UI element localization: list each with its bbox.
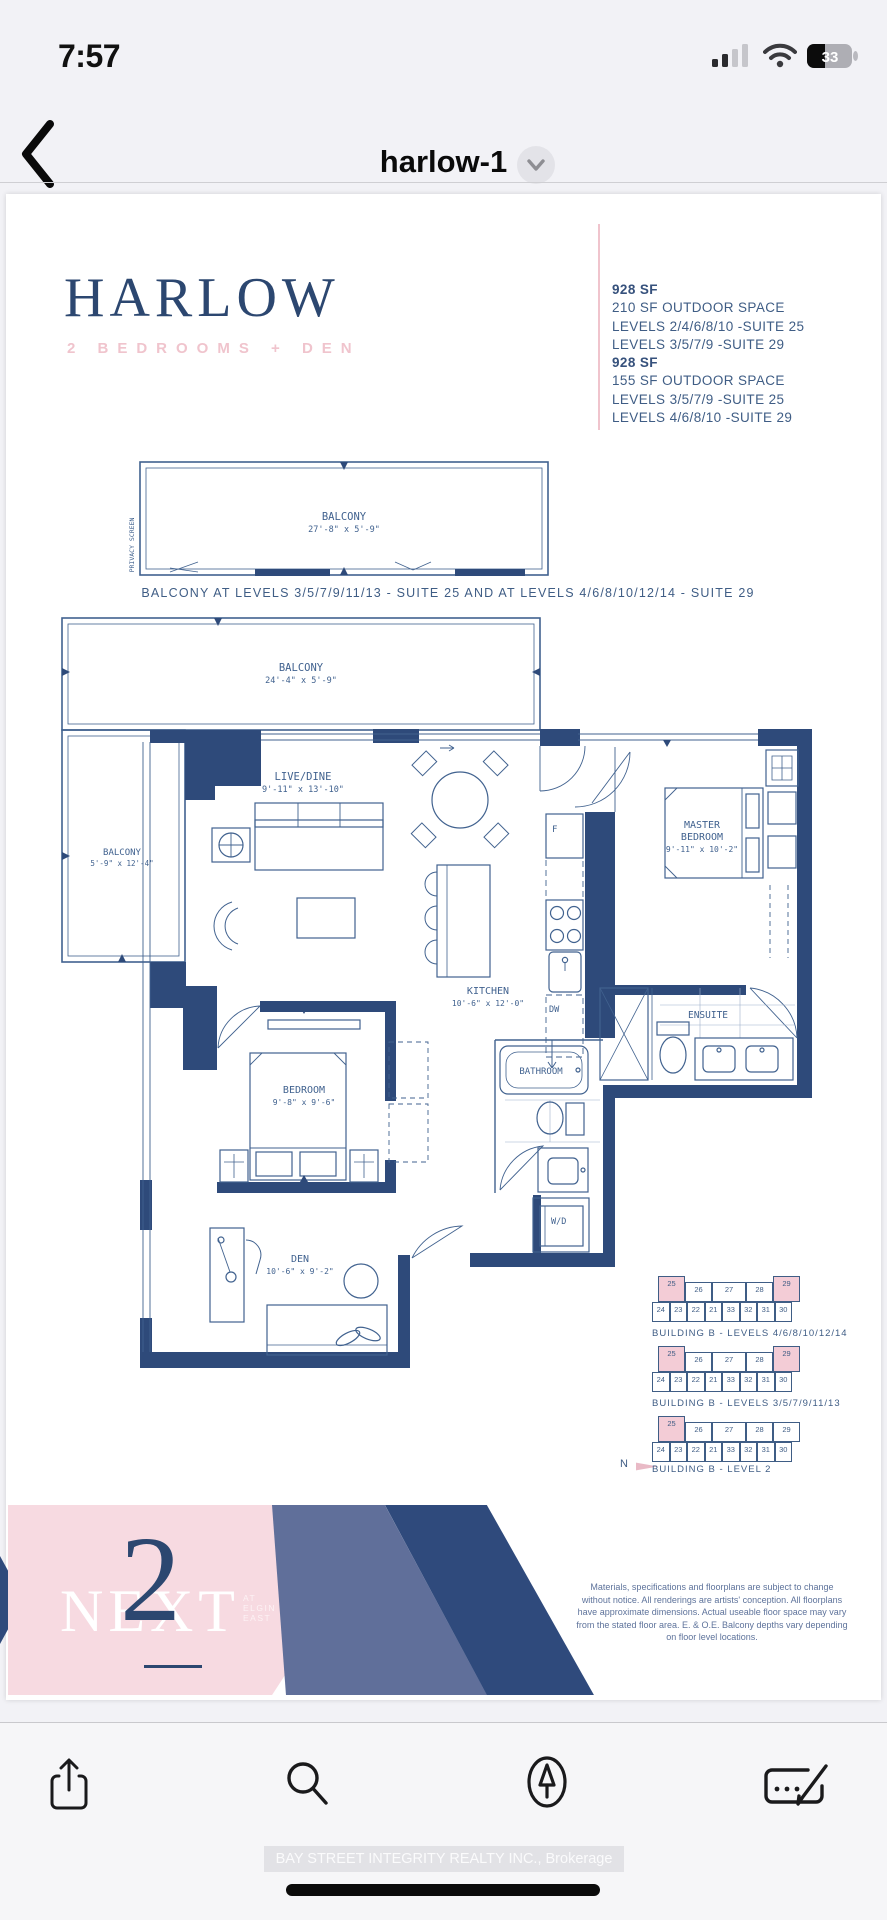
live-dine-label: LIVE/DINE	[275, 771, 332, 783]
keyplan-suite: 30	[775, 1372, 793, 1392]
keyplan-suite: 22	[687, 1442, 705, 1462]
balcony-strip-dims: 27'-8" x 5'-9"	[308, 525, 380, 535]
balcony-caption: BALCONY AT LEVELS 3/5/7/9/11/13 - SUITE …	[141, 586, 754, 600]
tagline-line: AT	[243, 1593, 276, 1603]
bathroom-label: BATHROOM	[519, 1067, 563, 1077]
master-bedroom-dims: 9'-11" x 10'-2"	[666, 845, 738, 854]
keyplan-suite: 28	[746, 1352, 773, 1372]
keyplan-suite: 30	[775, 1442, 793, 1462]
spec-line: LEVELS 3/5/7/9 -SUITE 29	[612, 336, 804, 354]
spec-divider-line	[598, 224, 600, 430]
privacy-screen-label: PRIVACY SCREEN	[128, 518, 136, 573]
keyplan-suite: 27	[712, 1352, 746, 1372]
keyplan-suite: 21	[705, 1442, 723, 1462]
north-label: N	[620, 1458, 628, 1470]
keyplan-levels-4-14: 25 26 27 28 29 24 23 22 21 33 32 31 30	[652, 1282, 812, 1322]
den-label: DEN	[291, 1254, 309, 1265]
keyplan-suite: 22	[687, 1372, 705, 1392]
master-bedroom-label-1: MASTER	[684, 820, 721, 831]
keyplan-suite: 31	[757, 1372, 775, 1392]
keyplan-caption: BUILDING B - LEVEL 2	[652, 1464, 872, 1475]
spec-line: 928 SF	[612, 281, 804, 299]
spec-line: LEVELS 4/6/8/10 -SUITE 29	[612, 409, 804, 427]
keyplan-suite: 23	[670, 1302, 688, 1322]
keyplan-level-2: 25 26 27 28 29 24 23 22 21 33 32 31 30	[652, 1422, 812, 1462]
brand-underline	[144, 1665, 202, 1668]
chevron-down-icon	[527, 159, 545, 171]
status-icons: 33	[711, 42, 859, 70]
keyplan-suite: 24	[652, 1372, 670, 1392]
brokerage-watermark: BAY STREET INTEGRITY REALTY INC., Broker…	[264, 1846, 624, 1872]
keyplan-suite: 26	[685, 1352, 712, 1372]
keyplan-caption: BUILDING B - LEVELS 4/6/8/10/12/14	[652, 1328, 872, 1339]
keyplan-suite: 33	[722, 1442, 740, 1462]
brand-numeral: 2	[120, 1519, 181, 1641]
kitchen-label: KITCHEN	[467, 986, 509, 997]
keyplan-suite: 22	[687, 1302, 705, 1322]
ensuite-label: ENSUITE	[688, 1010, 728, 1021]
fridge-label: F	[552, 825, 557, 835]
keyplan-suite: 30	[775, 1302, 793, 1322]
keyplan-suite: 24	[652, 1442, 670, 1462]
brand-banner: NEXT 2 AT ELGIN EAST Materials, specific…	[0, 1505, 887, 1695]
keyplan-suite: 32	[740, 1372, 758, 1392]
live-dine-dims: 9'-11" x 13'-10"	[262, 785, 344, 795]
keyplan-suite: 32	[740, 1442, 758, 1462]
keyplan-suite: 21	[705, 1372, 723, 1392]
keyplan-caption: BUILDING B - LEVELS 3/5/7/9/11/13	[652, 1398, 872, 1409]
keyplan-suite: 23	[670, 1372, 688, 1392]
balcony-side-dims: 5'-9" x 12'-4"	[90, 859, 153, 868]
spec-block: 928 SF 210 SF OUTDOOR SPACE LEVELS 2/4/6…	[612, 281, 804, 427]
keyplan-suite: 29	[773, 1276, 800, 1302]
spec-line: 928 SF	[612, 354, 804, 372]
toolbar-divider	[0, 1722, 887, 1723]
keyplan-suite: 31	[757, 1302, 775, 1322]
document-title: harlow-1	[0, 144, 887, 180]
plan-name: HARLOW	[64, 266, 340, 330]
keyplan-suite: 28	[746, 1422, 773, 1442]
keyplan-suite: 26	[685, 1282, 712, 1302]
cellular-signal-icon	[711, 42, 753, 70]
keyplan-suite: 25	[658, 1346, 685, 1372]
home-indicator[interactable]	[286, 1884, 600, 1896]
balcony-top-dims: 24'-4" x 5'-9"	[265, 676, 337, 686]
balcony-strip-label: BALCONY	[322, 511, 367, 523]
status-time: 7:57	[58, 38, 120, 75]
nav-divider	[0, 182, 887, 183]
plan-type: 2 BEDROOMS + DEN	[67, 340, 361, 357]
keyplan-suite: 32	[740, 1302, 758, 1322]
tagline-line: ELGIN	[243, 1603, 276, 1613]
brand-tagline: AT ELGIN EAST	[243, 1593, 276, 1623]
keyplan-suite: 31	[757, 1442, 775, 1462]
dishwasher-label: DW	[549, 1005, 560, 1015]
den-dims: 10'-6" x 9'-2"	[266, 1267, 333, 1276]
search-button[interactable]	[282, 1758, 332, 1810]
kitchen-dims: 10'-6" x 12'-0"	[452, 999, 524, 1008]
spec-line: LEVELS 2/4/6/8/10 -SUITE 25	[612, 318, 804, 336]
balcony-top-label: BALCONY	[279, 662, 324, 674]
keyplan-suite: 29	[773, 1422, 800, 1442]
keyplan-suite: 25	[658, 1416, 685, 1442]
bedroom-dims: 9'-8" x 9'-6"	[273, 1098, 336, 1107]
spec-line: LEVELS 3/5/7/9 -SUITE 25	[612, 391, 804, 409]
battery-percent: 33	[822, 49, 839, 66]
keyplan-suite: 21	[705, 1302, 723, 1322]
iphone-screen: 7:57 33 harlow-1 HARLOW 2 BEDROOM	[0, 0, 887, 1920]
keyplan-suite: 25	[658, 1276, 685, 1302]
spec-line: 210 SF OUTDOOR SPACE	[612, 299, 804, 317]
tagline-line: EAST	[243, 1613, 276, 1623]
share-button[interactable]	[46, 1755, 92, 1813]
keyplan-suite: 23	[670, 1442, 688, 1462]
wifi-icon	[763, 43, 797, 69]
keyplan-suite: 24	[652, 1302, 670, 1322]
keyplan-suite: 28	[746, 1282, 773, 1302]
keyplan-suite: 27	[712, 1282, 746, 1302]
title-dropdown-button[interactable]	[517, 146, 555, 184]
bedroom-label: BEDROOM	[283, 1085, 325, 1096]
signature-button[interactable]	[762, 1760, 834, 1812]
balcony-side-label: BALCONY	[103, 848, 142, 858]
floorplan-drawing: BALCONY 27'-8" x 5'-9" PRIVACY SCREEN BA…	[0, 440, 887, 1400]
keyplan-suite: 26	[685, 1422, 712, 1442]
master-bedroom-label-2: BEDROOM	[681, 832, 723, 843]
keyplan-suite: 33	[722, 1372, 740, 1392]
keyplan-suite: 27	[712, 1422, 746, 1442]
keyplan-suite: 29	[773, 1346, 800, 1372]
spec-line: 155 SF OUTDOOR SPACE	[612, 372, 804, 390]
washer-dryer-label: W/D	[551, 1217, 566, 1227]
markup-button[interactable]	[525, 1753, 569, 1813]
battery-icon: 33	[807, 43, 859, 69]
keyplan-levels-3-13: 25 26 27 28 29 24 23 22 21 33 32 31 30	[652, 1352, 812, 1392]
keyplan-suite: 33	[722, 1302, 740, 1322]
disclaimer-text: Materials, specifications and floorplans…	[576, 1581, 848, 1644]
